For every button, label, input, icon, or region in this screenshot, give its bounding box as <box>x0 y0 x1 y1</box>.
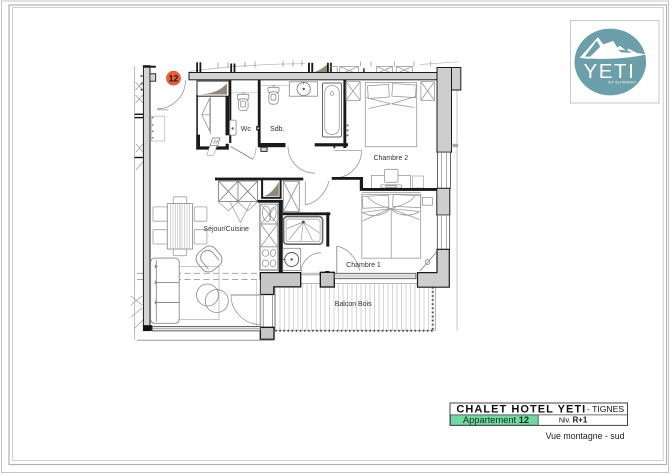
svg-text:- TIGNES: - TIGNES <box>587 404 624 414</box>
svg-text:Vue montagne - sud: Vue montagne - sud <box>546 431 625 441</box>
svg-text:Balcon Bois: Balcon Bois <box>335 301 372 308</box>
svg-text:Wc: Wc <box>241 126 252 133</box>
svg-text:Sdb.: Sdb. <box>270 126 284 133</box>
svg-text:BY ALPAPART: BY ALPAPART <box>608 81 637 85</box>
svg-text:12: 12 <box>169 73 179 83</box>
svg-text:Chambre 2: Chambre 2 <box>373 155 408 162</box>
svg-text:Séjour/Cuisine: Séjour/Cuisine <box>203 226 249 233</box>
svg-text:Appartement 12: Appartement 12 <box>463 415 529 425</box>
svg-text:CHALET HOTEL YETI: CHALET HOTEL YETI <box>456 403 586 415</box>
svg-text:2.50: 2.50 <box>451 145 458 149</box>
svg-text:Chambre 1: Chambre 1 <box>346 262 381 269</box>
svg-text:Niv. R+1: Niv. R+1 <box>559 416 588 425</box>
